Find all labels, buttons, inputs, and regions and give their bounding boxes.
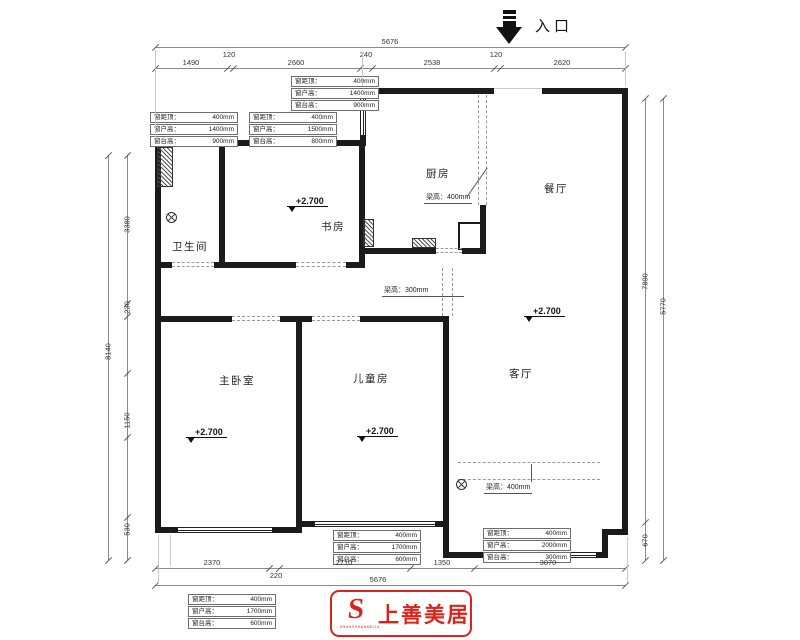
note-value: 2000mm xyxy=(542,541,567,550)
room-label-master-bedroom: 主卧室 xyxy=(219,373,255,388)
dimension-line xyxy=(155,568,625,569)
door-opening xyxy=(436,248,462,249)
wall-segment xyxy=(222,262,296,268)
dimension-label: 3380 xyxy=(123,208,132,242)
dimension-label: 8140 xyxy=(104,335,113,369)
wall-segment xyxy=(360,88,494,94)
logo-brand-text: 上善美居 xyxy=(378,599,470,629)
note-value: 400mm xyxy=(395,531,417,540)
note-key: 窗台高： xyxy=(192,619,218,628)
beam-opening xyxy=(458,479,600,480)
dimension-label: 670 xyxy=(641,524,650,558)
window-note-box: 窗距顶：400mm 窗户高：1400mm 窗台高：900mm xyxy=(150,112,238,148)
dimension-tick xyxy=(622,582,629,589)
window-note-box: 窗距顶：400mm 窗户高：1500mm 窗台高：800mm xyxy=(249,112,337,148)
note-value: 600mm xyxy=(250,619,272,628)
note-value: 800mm xyxy=(311,137,333,146)
dimension-line xyxy=(663,98,664,560)
wall-segment xyxy=(155,527,178,533)
window-note-box: 窗距顶：400mm 窗户高：2000mm 窗台高：300mm xyxy=(483,528,571,564)
dimension-line xyxy=(155,47,625,48)
door-opening xyxy=(312,320,360,321)
window-note-row: 窗距顶：400mm xyxy=(188,594,276,605)
dimension-label: 2710 xyxy=(336,558,353,567)
window-note-row: 窗距顶：400mm xyxy=(333,530,421,541)
note-key: 窗户高： xyxy=(337,543,363,552)
extension-line xyxy=(170,535,171,566)
window-note-row: 窗台高：900mm xyxy=(291,100,379,111)
note-value: 1400mm xyxy=(209,125,234,134)
dimension-label: 2660 xyxy=(288,58,305,67)
beam-opening xyxy=(478,95,479,205)
note-key: 窗距顶： xyxy=(487,529,513,538)
dimension-tick xyxy=(622,44,629,51)
note-key: 窗距顶： xyxy=(253,113,279,122)
wall-segment xyxy=(214,262,222,268)
dimension-tick xyxy=(124,557,131,564)
beam-opening xyxy=(486,95,487,205)
dimension-label: 5676 xyxy=(370,575,387,584)
wall-segment xyxy=(155,316,232,322)
window-note-row: 窗距顶：400mm xyxy=(291,76,379,87)
dimension-label: 1150 xyxy=(123,404,132,438)
window-note-row: 窗距顶：400mm xyxy=(150,112,238,123)
note-key: 窗距顶： xyxy=(192,595,218,604)
dimension-line xyxy=(645,98,646,560)
wall-segment xyxy=(365,248,436,254)
note-key: 窗台高： xyxy=(253,137,279,146)
window-note-row: 窗户高：1500mm xyxy=(249,124,337,135)
note-key: 窗距顶： xyxy=(337,531,363,540)
note-key: 窗户高： xyxy=(154,125,180,134)
note-key: 窗台高： xyxy=(295,101,321,110)
logo-subtext: SHANGSHANMEIJU xyxy=(340,624,372,629)
note-key: 窗户高： xyxy=(192,607,218,616)
dimension-label: 2538 xyxy=(424,58,441,67)
note-key: 窗台高： xyxy=(487,553,513,562)
dimension-label: 5676 xyxy=(382,37,399,46)
note-value: 900mm xyxy=(212,137,234,146)
window-note-row: 窗户高：1700mm xyxy=(188,606,276,617)
radiator-icon xyxy=(412,238,436,248)
note-key: 窗户高： xyxy=(253,125,279,134)
window-note-row: 窗台高：600mm xyxy=(188,618,276,629)
window-note-row: 窗户高：1700mm xyxy=(333,542,421,553)
dimension-label: 2370 xyxy=(204,558,221,567)
elevation-marker: +2.700 xyxy=(186,427,227,438)
floor-plan-canvas: 入口 xyxy=(0,0,800,640)
extension-line xyxy=(625,52,626,86)
beam-note-leader xyxy=(531,464,532,482)
note-key: 窗距顶： xyxy=(154,113,180,122)
window-note-row: 窗距顶：400mm xyxy=(483,528,571,539)
note-value: 1700mm xyxy=(392,543,417,552)
wall-segment xyxy=(346,262,365,268)
wall-segment xyxy=(296,521,315,527)
elevation-marker: +2.700 xyxy=(287,196,328,207)
wall-segment xyxy=(155,140,161,533)
note-key: 窗户高： xyxy=(295,89,321,98)
note-value: 1700mm xyxy=(247,607,272,616)
beam-note: 梁高：400mm xyxy=(424,192,472,204)
note-key: 窗台高： xyxy=(154,137,180,146)
window-note-box: 窗距顶：400mm 窗户高：1700mm 窗台高：600mm xyxy=(188,594,276,630)
entrance-arrow-stripe xyxy=(503,14,516,16)
dimension-tick xyxy=(642,557,649,564)
entry-threshold-line xyxy=(494,88,542,89)
beam-note-leader xyxy=(466,167,487,197)
entrance-label: 入口 xyxy=(535,15,573,36)
door-opening xyxy=(296,262,346,263)
door-opening xyxy=(172,266,214,267)
logo-monogram: S xyxy=(336,594,375,624)
dimension-label: 1350 xyxy=(434,558,451,567)
room-label-kitchen: 厨房 xyxy=(426,166,450,181)
wall-segment xyxy=(602,529,628,535)
floor-drain-icon xyxy=(456,479,467,490)
note-key: 窗距顶： xyxy=(295,77,321,86)
extension-line xyxy=(158,535,159,583)
window xyxy=(178,527,272,533)
wall-segment xyxy=(360,316,448,322)
beam-opening xyxy=(458,462,600,463)
note-value: 400mm xyxy=(250,595,272,604)
entrance-arrow-head-icon xyxy=(496,27,522,44)
dimension-label: 120 xyxy=(490,50,503,59)
extension-line xyxy=(155,50,156,138)
radiator-icon xyxy=(363,219,374,247)
logo-s-icon: S SHANGSHANMEIJU xyxy=(338,594,374,634)
dimension-label: 7890 xyxy=(641,265,650,299)
dimension-tick xyxy=(660,557,667,564)
dimension-label: 5770 xyxy=(659,290,668,324)
dimension-tick xyxy=(105,557,112,564)
note-key: 窗户高： xyxy=(487,541,513,550)
note-value: 400mm xyxy=(545,529,567,538)
dimension-line xyxy=(155,585,625,586)
wall-segment xyxy=(542,88,628,94)
note-value: 900mm xyxy=(353,101,375,110)
note-value: 400mm xyxy=(212,113,234,122)
window xyxy=(315,521,435,527)
window-note-box: 窗距顶：400mm 窗户高：1400mm 窗台高：900mm xyxy=(291,76,379,112)
dimension-label: 120 xyxy=(223,50,236,59)
wall-segment xyxy=(602,532,608,556)
door-opening xyxy=(172,262,214,263)
entrance-arrow-stripe xyxy=(503,19,516,21)
room-label-kids-room: 儿童房 xyxy=(353,371,389,386)
note-value: 600mm xyxy=(395,555,417,564)
window-note-row: 窗台高：900mm xyxy=(150,136,238,147)
window-note-row: 窗台高：800mm xyxy=(249,136,337,147)
window-note-row: 窗户高：1400mm xyxy=(291,88,379,99)
wall-segment xyxy=(435,521,449,527)
elevation-marker: +2.700 xyxy=(524,306,565,317)
beam-note: 梁高：300mm xyxy=(382,285,464,297)
door-opening xyxy=(296,266,346,267)
dimension-label: 3070 xyxy=(540,558,557,567)
wall-segment xyxy=(219,146,225,262)
door-opening xyxy=(436,252,462,253)
wall-segment xyxy=(296,316,302,527)
flue-shaft-icon xyxy=(157,147,173,187)
note-value: 1500mm xyxy=(308,125,333,134)
window-note-row: 窗户高：2000mm xyxy=(483,540,571,551)
room-label-dining: 餐厅 xyxy=(544,181,568,196)
floor-drain-icon xyxy=(166,212,177,223)
door-opening xyxy=(312,316,360,317)
window-note-row: 窗户高：1400mm xyxy=(150,124,238,135)
wall-segment xyxy=(155,262,172,268)
extension-line xyxy=(627,537,628,583)
room-label-living-room: 客厅 xyxy=(509,366,533,381)
kitchen-flue-box xyxy=(458,222,482,250)
brand-logo: S SHANGSHANMEIJU 上善美居 xyxy=(330,590,472,637)
room-label-study: 书房 xyxy=(321,219,345,234)
window-note-row: 窗距顶：400mm xyxy=(249,112,337,123)
window-note-row: 窗台高：300mm xyxy=(483,552,571,563)
extension-line xyxy=(362,52,363,86)
wall-segment xyxy=(622,88,628,535)
dimension-label: 2620 xyxy=(554,58,571,67)
beam-note: 梁高：400mm xyxy=(484,482,532,494)
note-value: 1400mm xyxy=(350,89,375,98)
dimension-label: 1490 xyxy=(183,58,200,67)
note-value: 400mm xyxy=(311,113,333,122)
door-opening xyxy=(232,320,280,321)
wall-segment xyxy=(272,527,302,533)
elevation-marker: +2.700 xyxy=(357,426,398,437)
door-opening xyxy=(232,316,280,317)
note-value: 400mm xyxy=(353,77,375,86)
room-label-bathroom: 卫生间 xyxy=(172,239,208,254)
